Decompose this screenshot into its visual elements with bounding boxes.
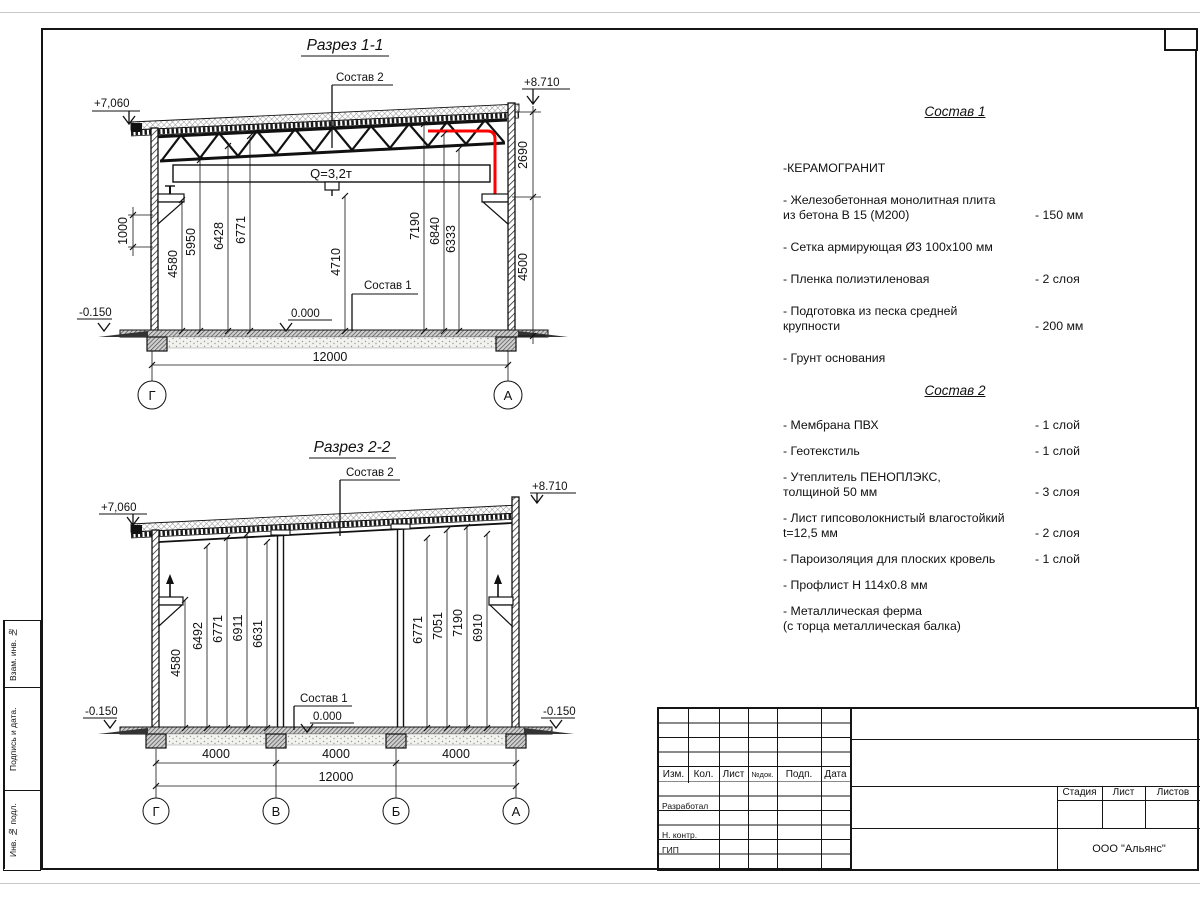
strip-label-inv: Инв. № подл. — [4, 791, 21, 869]
dim2-7190: 7190 — [451, 609, 465, 637]
list-item: - Железобетонная монолитная плита из бет… — [783, 193, 1127, 223]
tb-line — [1057, 800, 1200, 801]
item-name: - Металлическая ферма (с торца металличе… — [783, 604, 961, 633]
item-name: - Железобетонная монолитная плита из бет… — [783, 193, 995, 222]
grid-line — [821, 709, 822, 869]
list-item: - Грунт основания — [783, 351, 1127, 366]
spec2-list: - Мембрана ПВХ- 1 слой - Геотекстиль- 1 … — [783, 418, 1127, 634]
list-item: - Пароизоляция для плоских кровель- 1 сл… — [783, 552, 1127, 567]
sostav2-leader-label-2: Состав 2 — [346, 467, 394, 479]
dim-1000: 1000 — [116, 217, 130, 245]
eave-end-plate-2 — [131, 525, 142, 534]
dim-5950: 5950 — [184, 228, 198, 256]
item-value: - 2 слоя — [1035, 526, 1080, 541]
section1-title: Разрез 1-1 — [307, 37, 384, 54]
axis2-letter-b: Б — [392, 804, 401, 819]
item-value: - 150 мм — [1035, 208, 1083, 223]
axis-letter-g: Г — [148, 388, 155, 403]
list-item: - Лист гипсоволокнистый влагостойкий t=1… — [783, 511, 1127, 541]
level-8710: +8.710 — [524, 77, 560, 89]
axis2-letter-g: Г — [152, 804, 159, 819]
level-0000: 0.000 — [291, 308, 320, 320]
level2-7060: +7,060 — [101, 502, 137, 514]
foundation-left — [147, 337, 167, 351]
strip-label-podpis: Подпись и дата. — [4, 688, 21, 790]
column-capital-v — [271, 530, 290, 535]
frame-side-strip: Взам. инв. № Подпись и дата. Инв. № подл… — [3, 620, 41, 871]
dim-6840: 6840 — [428, 217, 442, 245]
level-m0150: -0.150 — [79, 307, 112, 319]
tb-col-podp: Подп. — [777, 768, 821, 782]
grid-line — [777, 709, 778, 869]
item-name: - Пленка полиэтиленовая — [783, 272, 929, 286]
item-name: -КЕРАМОГРАНИТ — [783, 161, 885, 175]
dim2-6911: 6911 — [231, 615, 245, 642]
dim2-span2: 4000 — [322, 747, 350, 761]
item-value: - 1 слой — [1035, 552, 1080, 567]
item-name: - Лист гипсоволокнистый влагостойкий t=1… — [783, 511, 1005, 540]
section-2-2: Разрез 2-2 — [83, 439, 576, 824]
list-item: - Металлическая ферма (с торца металличе… — [783, 604, 1127, 634]
item-value: - 200 мм — [1035, 319, 1083, 334]
item-name: - Утеплитель ПЕНОПЛЭКС, толщиной 50 мм — [783, 470, 941, 499]
load-arrow-right — [494, 574, 502, 584]
wall-left — [151, 128, 158, 334]
list-item: - Подготовка из песка средней крупности-… — [783, 304, 1127, 334]
floor-slab — [120, 330, 548, 337]
item-name: - Мембрана ПВХ — [783, 418, 879, 432]
load-arrow-left — [166, 574, 174, 584]
strip-cell: Подпись и дата. — [4, 688, 40, 791]
dim2-4580: 4580 — [169, 649, 183, 677]
axis-letter-a: А — [504, 388, 513, 403]
strip-label-vzam: Взам. инв. № — [4, 621, 21, 687]
dim2-6631: 6631 — [251, 620, 265, 648]
item-value: - 2 слоя — [1035, 272, 1080, 287]
dim2-6771r: 6771 — [411, 616, 425, 644]
spec1-list: -КЕРАМОГРАНИТ - Железобетонная монолитна… — [783, 161, 1127, 366]
axis2-letter-v: В — [272, 804, 281, 819]
wall-left-2 — [152, 530, 159, 735]
tb-line — [850, 739, 1200, 740]
section2-title: Разрез 2-2 — [314, 439, 391, 456]
foundation-right — [496, 337, 516, 351]
list-item: - Профлист Н 114х0.8 мм — [783, 578, 1127, 593]
tb-sheet-label: Лист — [1102, 786, 1145, 800]
dim-12000: 12000 — [313, 350, 348, 364]
level-7060: +7,060 — [94, 98, 130, 110]
drawing-sheet: Разрез 1-1 Q=3,2т — [0, 0, 1200, 900]
sostav1-leader-label: Состав 1 — [364, 280, 412, 292]
crane-hook — [325, 182, 339, 190]
sostav2-leader-label: Состав 2 — [336, 72, 384, 84]
dim2-6492: 6492 — [191, 622, 205, 650]
item-value: - 1 слой — [1035, 418, 1080, 433]
foundation-g — [146, 734, 166, 748]
bracket-left-2 — [159, 597, 183, 605]
list-item: -КЕРАМОГРАНИТ — [783, 161, 1127, 176]
foundation-v — [266, 734, 286, 748]
item-name: - Сетка армирующая Ø3 100х100 мм — [783, 240, 993, 254]
tb-row-gip: ГИП — [662, 843, 679, 857]
level2-0000: 0.000 — [313, 711, 342, 723]
dim-4500: 4500 — [516, 253, 530, 281]
tb-col-ndok: №док. — [748, 768, 777, 782]
grid-line — [748, 709, 749, 869]
wall-right-2 — [512, 497, 519, 735]
bracket-left — [158, 194, 184, 202]
grid-line — [850, 709, 852, 869]
dim2-7051: 7051 — [431, 612, 445, 640]
level2-8710: +8.710 — [532, 481, 568, 493]
strip-cell: Взам. инв. № — [4, 621, 40, 688]
wall-right — [508, 103, 515, 334]
dim2-span1: 4000 — [202, 747, 230, 761]
sostav1-leader-label-2: Состав 1 — [300, 693, 348, 705]
eave-end-plate — [131, 123, 142, 132]
dim-4580: 4580 — [166, 250, 180, 278]
dim-4710: 4710 — [329, 248, 343, 276]
tb-row-nkontr: Н. контр. — [662, 828, 697, 842]
tb-company: ООО "Альянс" — [1057, 829, 1200, 869]
dim-6333: 6333 — [444, 225, 458, 253]
list-item: - Мембрана ПВХ- 1 слой — [783, 418, 1127, 433]
spec2-title: Состав 2 — [783, 383, 1127, 398]
list-item: - Утеплитель ПЕНОПЛЭКС, толщиной 50 мм- … — [783, 470, 1127, 500]
dim-2690: 2690 — [516, 141, 530, 169]
foundation-b — [386, 734, 406, 748]
tb-sheets-label: Листов — [1145, 786, 1200, 800]
item-name: - Пароизоляция для плоских кровель — [783, 552, 995, 566]
sand-bed — [167, 337, 496, 348]
tb-col-kol: Кол. — [688, 768, 719, 782]
dim-7190: 7190 — [408, 212, 422, 240]
spec1-title: Состав 1 — [783, 104, 1127, 119]
tb-row-razrabotal: Разработал — [662, 799, 708, 813]
tb-col-list: Лист — [719, 768, 748, 782]
foundation-a — [506, 734, 526, 748]
dim2-6771l: 6771 — [211, 615, 225, 643]
dim-6771: 6771 — [234, 216, 248, 244]
item-name: - Профлист Н 114х0.8 мм — [783, 578, 928, 592]
section-1-1: Разрез 1-1 Q=3,2т — [77, 37, 570, 409]
grid-line — [719, 709, 720, 869]
axis2-letter-a: А — [512, 804, 521, 819]
item-name: - Грунт основания — [783, 351, 885, 365]
composition-lists: Состав 1 -КЕРАМОГРАНИТ - Железобетонная … — [783, 104, 1127, 645]
level2-m0150-right: -0.150 — [543, 706, 576, 718]
item-name: - Подготовка из песка средней крупности — [783, 304, 957, 333]
level2-m0150-left: -0.150 — [85, 706, 118, 718]
title-block: Изм. Кол. Лист №док. Подп. Дата Разработ… — [657, 707, 1199, 871]
column-capital-b — [391, 524, 410, 529]
item-name: - Геотекстиль — [783, 444, 860, 458]
tb-col-izm: Изм. — [659, 768, 688, 782]
tb-col-data: Дата — [821, 768, 850, 782]
dim2-12000: 12000 — [319, 770, 354, 784]
dim2-span3: 4000 — [442, 747, 470, 761]
list-item: - Сетка армирующая Ø3 100х100 мм — [783, 240, 1127, 255]
item-value: - 3 слоя — [1035, 485, 1080, 500]
dim2-6910: 6910 — [471, 614, 485, 642]
list-item: - Геотекстиль- 1 слой — [783, 444, 1127, 459]
strip-cell: Инв. № подл. — [4, 791, 40, 869]
tb-stage-label: Стадия — [1057, 786, 1102, 800]
item-value: - 1 слой — [1035, 444, 1080, 459]
dim-6428: 6428 — [212, 222, 226, 250]
bracket-right — [482, 194, 508, 202]
crane-capacity-label: Q=3,2т — [310, 166, 352, 181]
list-item: - Пленка полиэтиленовая- 2 слоя — [783, 272, 1127, 287]
bracket-right-2 — [489, 597, 513, 605]
